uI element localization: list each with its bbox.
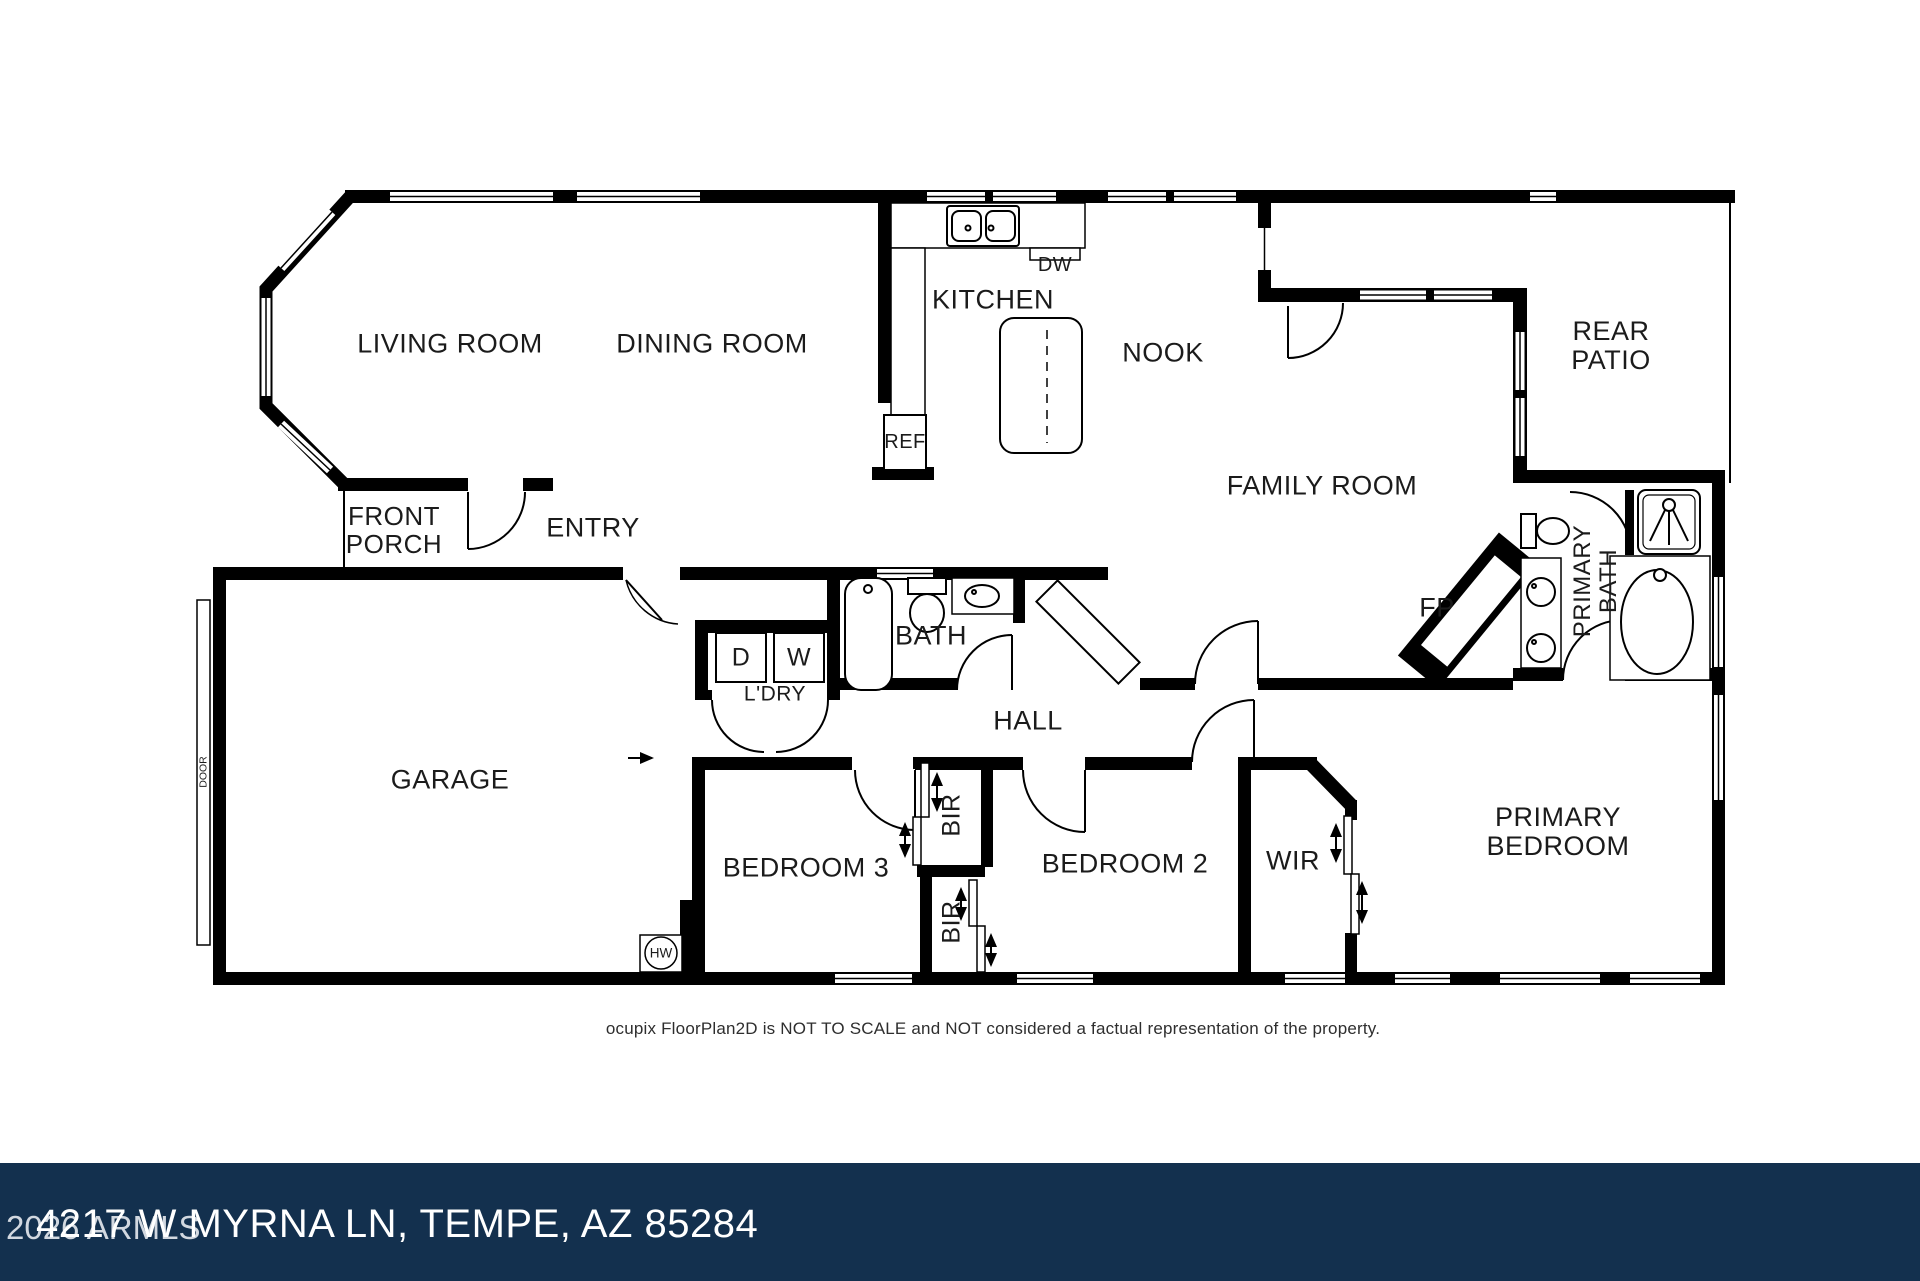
room-label-kitchen: KITCHEN: [932, 285, 1054, 314]
room-label-entry: ENTRY: [546, 513, 640, 542]
fixture-label-garage-door: DOOR: [198, 756, 209, 788]
fixture-label-dishwasher: DW: [1038, 255, 1072, 277]
room-label-dining-room: DINING ROOM: [616, 329, 808, 358]
disclaimer-text: ocupix FloorPlan2D is NOT TO SCALE and N…: [606, 1019, 1380, 1039]
room-label-primary-bath: PRIMARY BATH: [1570, 516, 1622, 646]
laundry-door-arc: [712, 700, 764, 752]
address-bar: 2026 ARMLS 4217 W MYRNA LN, TEMPE, AZ 85…: [0, 1163, 1920, 1281]
bath-vanity-sink-icon: [952, 578, 1014, 614]
address-text: 4217 W MYRNA LN, TEMPE, AZ 85284: [36, 1202, 758, 1247]
room-label-nook: NOOK: [1122, 338, 1204, 367]
fixture-label-fireplace: FP: [1419, 593, 1455, 622]
room-label-family-room: FAMILY ROOM: [1227, 471, 1418, 500]
room-label-wir: WIR: [1266, 846, 1320, 875]
bedroom3-door-arc: [855, 770, 915, 830]
room-label-hall: HALL: [993, 706, 1063, 735]
kitchen-island: [1000, 318, 1082, 453]
bathtub-icon: [845, 578, 892, 690]
patio-door-arc: [1288, 303, 1343, 358]
fixture-label-washer: W: [787, 645, 811, 672]
fixture-label-bir-lower: BIR: [939, 900, 966, 943]
entry-door-arc: [468, 492, 525, 549]
floorplan-page: LIVING ROOM DINING ROOM KITCHEN DW NOOK …: [0, 0, 1920, 1281]
room-label-front-porch: FRONT PORCH: [327, 502, 462, 558]
fixture-label-bir-upper: BIR: [939, 793, 966, 836]
primary-toilet-icon: [1521, 514, 1569, 548]
room-label-primary-bedroom: PRIMARY BEDROOM: [1443, 803, 1673, 861]
fixture-label-dryer: D: [732, 645, 751, 672]
fixture-label-water-heater: HW: [650, 947, 673, 962]
kitchen-sink-icon: [947, 206, 1019, 246]
shower-icon: [1638, 490, 1700, 554]
room-label-living-room: LIVING ROOM: [357, 329, 543, 358]
primary-tub-icon: [1610, 556, 1710, 680]
room-label-bath: BATH: [895, 621, 967, 650]
room-label-laundry: L'DRY: [744, 684, 806, 707]
fixture-label-refrigerator: REF: [884, 432, 926, 454]
linen-closet-shelf: [1036, 580, 1139, 683]
room-label-bedroom-2: BEDROOM 2: [1042, 849, 1209, 878]
primary-bedroom-door-arc: [1192, 700, 1254, 762]
family-room-door-arc: [1195, 621, 1258, 684]
room-label-bedroom-3: BEDROOM 3: [723, 853, 890, 882]
room-label-rear-patio: REAR PATIO: [1539, 317, 1684, 375]
primary-vanity-double-sink-icon: [1521, 558, 1561, 668]
bedroom2-door-arc: [1023, 770, 1085, 832]
room-label-garage: GARAGE: [391, 765, 510, 794]
